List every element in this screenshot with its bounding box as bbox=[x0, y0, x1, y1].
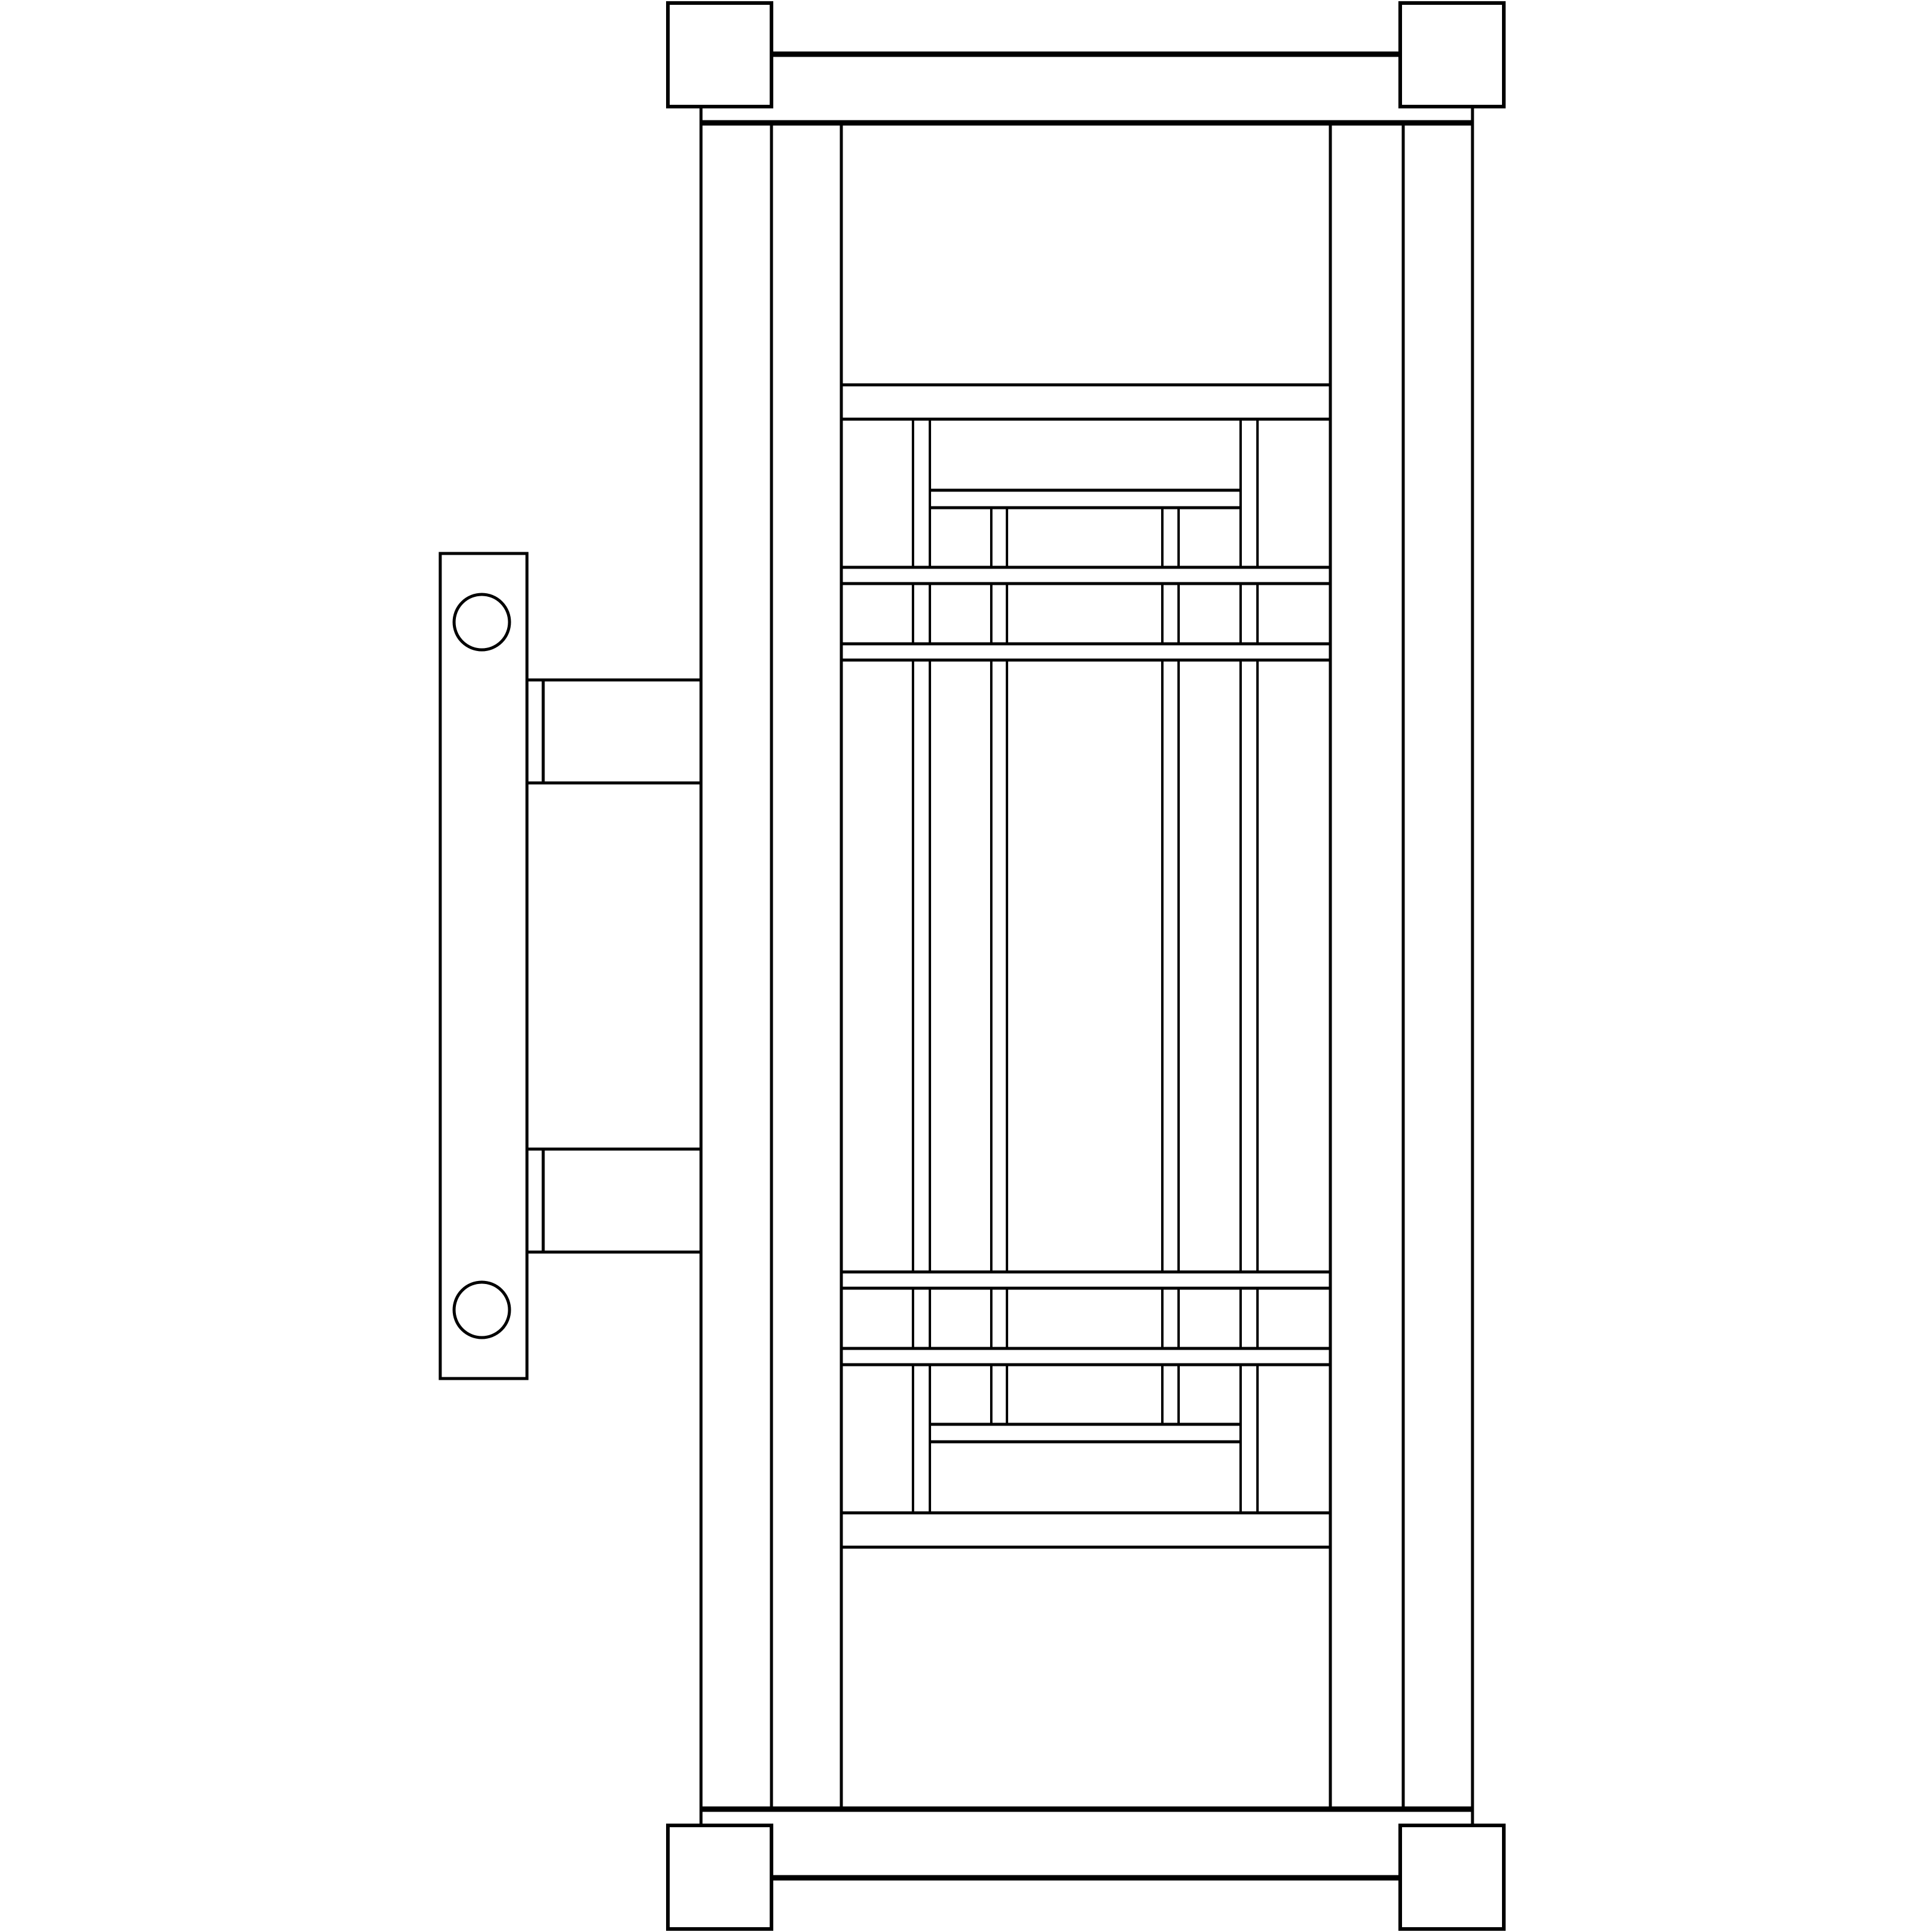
bracket-screw-hole-top bbox=[454, 594, 509, 650]
sconce-drawing-svg bbox=[0, 0, 1932, 1932]
bracket-screw-hole-bottom bbox=[454, 1282, 509, 1338]
lantern-bottom-left-cap bbox=[668, 1825, 771, 1929]
sconce-technical-drawing-page bbox=[0, 0, 1932, 1932]
lantern-top-right-cap bbox=[1400, 3, 1504, 107]
lantern-top-left-cap bbox=[668, 3, 771, 107]
lantern-bottom-right-cap bbox=[1400, 1825, 1504, 1929]
wall-bracket-back-plate bbox=[440, 553, 527, 1379]
